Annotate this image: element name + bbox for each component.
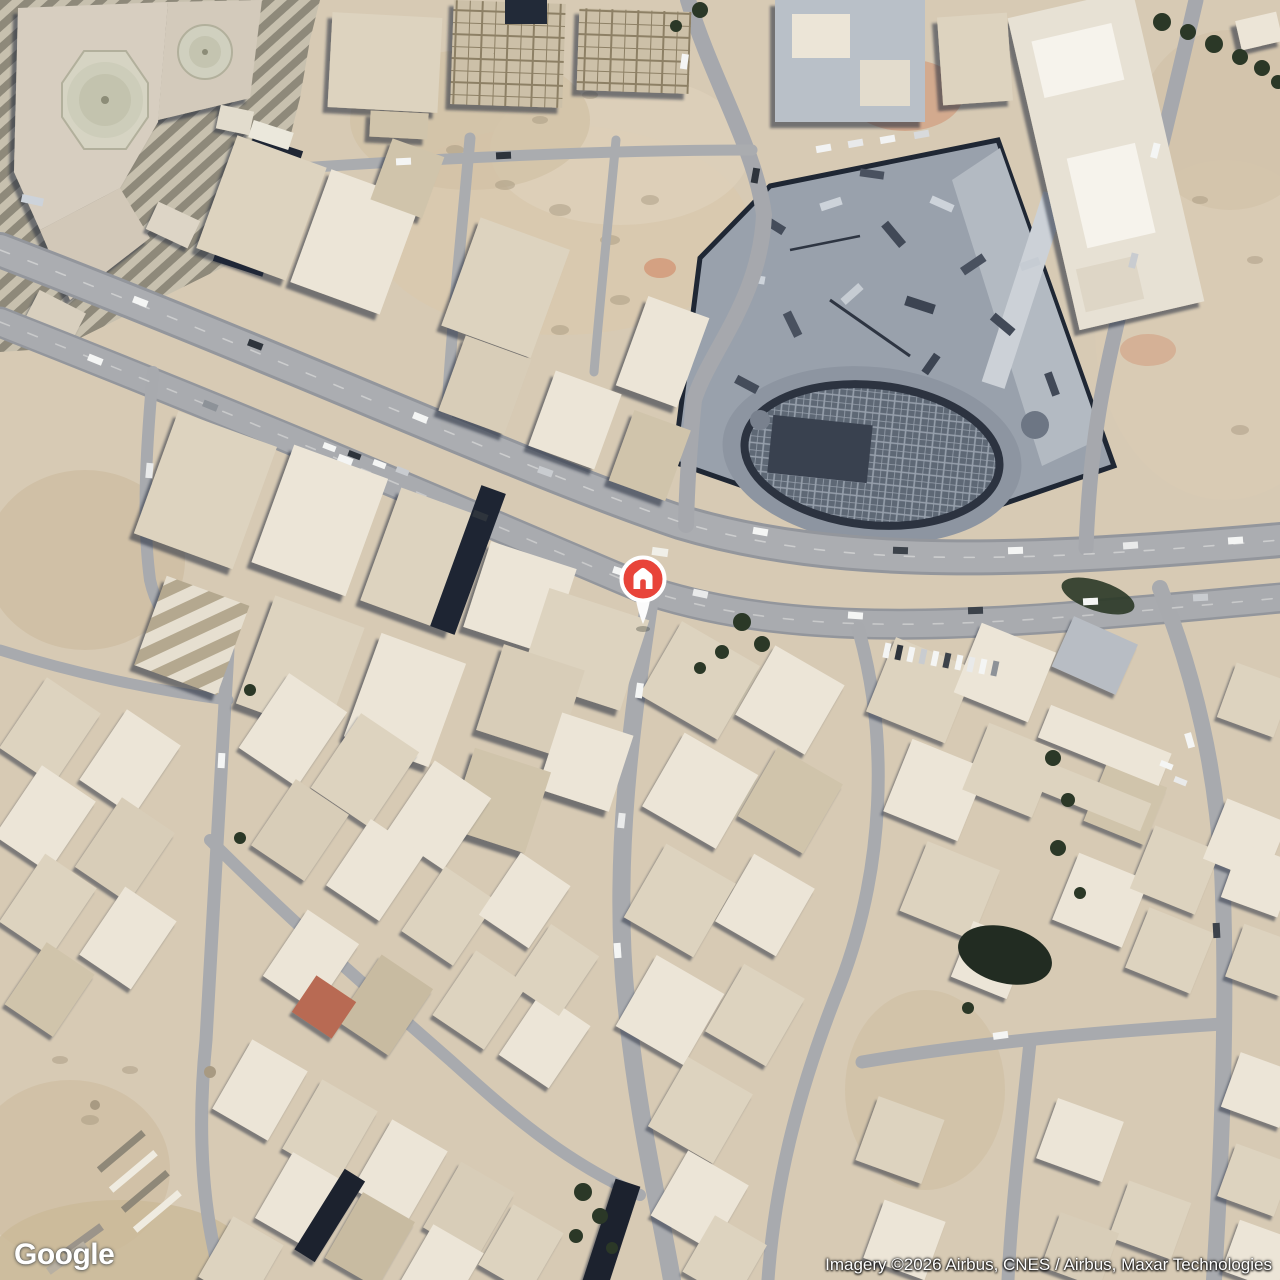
pin-shadow (636, 626, 650, 632)
google-logo[interactable]: Google (14, 1238, 114, 1272)
location-pin-marker[interactable] (615, 551, 671, 643)
satellite-map[interactable]: Google Imagery ©2026 Airbus, CNES / Airb… (0, 0, 1280, 1280)
imagery-attribution: Imagery ©2026 Airbus, CNES / Airbus, Max… (825, 1255, 1272, 1275)
